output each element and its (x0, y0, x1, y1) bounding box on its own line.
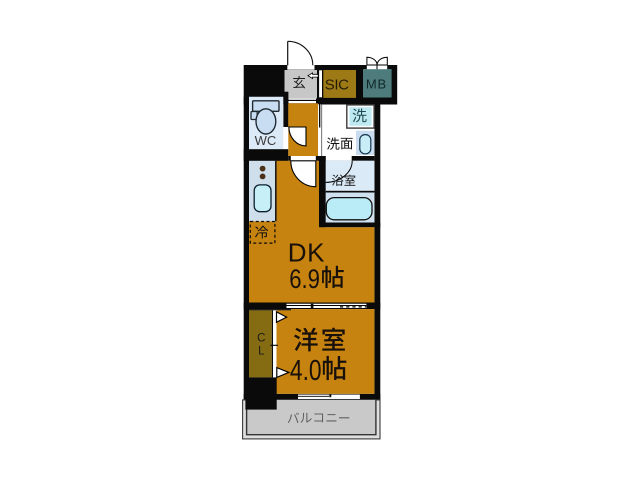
svg-text:6.9: 6.9 (289, 264, 320, 294)
svg-text:4.0: 4.0 (290, 355, 322, 387)
svg-text:C: C (257, 332, 265, 344)
svg-text:WC: WC (255, 133, 277, 148)
svg-text:SIC: SIC (325, 76, 349, 93)
svg-text:MB: MB (366, 77, 387, 92)
svg-text:L: L (258, 346, 265, 358)
svg-text:DK: DK (288, 237, 325, 267)
